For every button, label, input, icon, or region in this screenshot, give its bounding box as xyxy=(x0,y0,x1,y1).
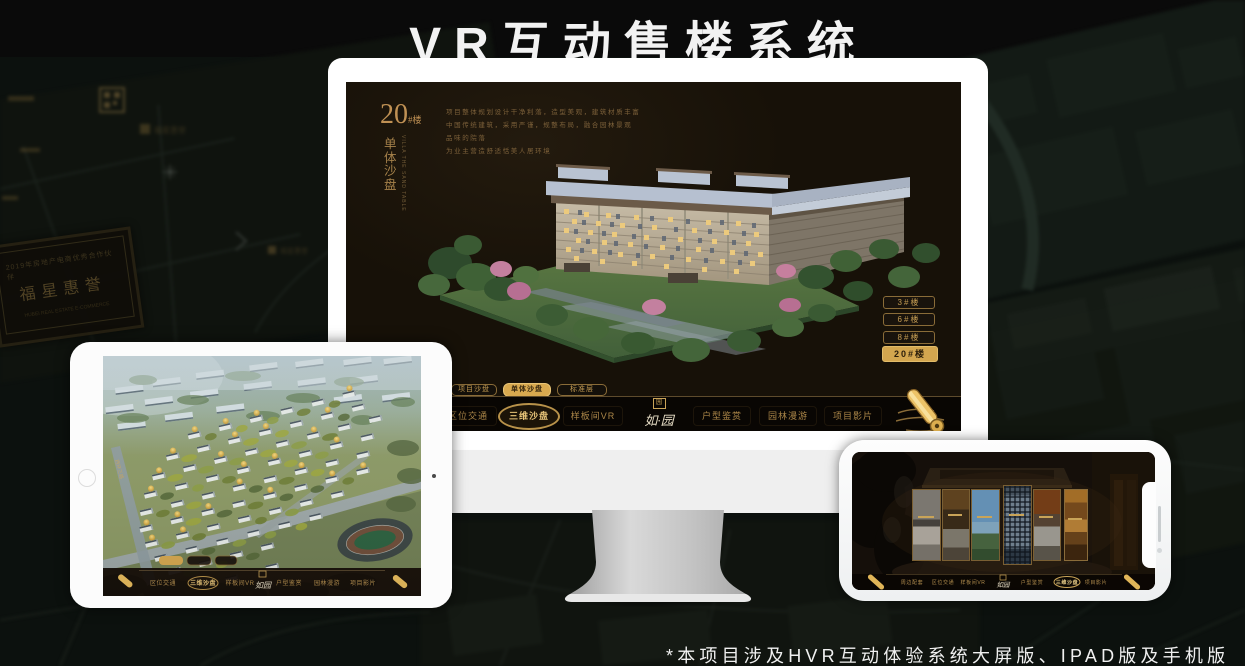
svg-text:区位交通: 区位交通 xyxy=(932,579,954,586)
svg-text:户型鉴赏: 户型鉴赏 xyxy=(1021,579,1043,586)
svg-text:福星惠誉: 福星惠誉 xyxy=(280,246,308,255)
svg-text:如园: 如园 xyxy=(997,581,1012,589)
svg-text:三维沙盘: 三维沙盘 xyxy=(1056,579,1078,586)
svg-text:周边配套: 周边配套 xyxy=(901,579,923,586)
svg-text:福星惠誉: 福星惠誉 xyxy=(154,125,186,135)
svg-text:样板间VR: 样板间VR xyxy=(961,579,986,586)
svg-text:项目影片: 项目影片 xyxy=(1085,579,1107,586)
